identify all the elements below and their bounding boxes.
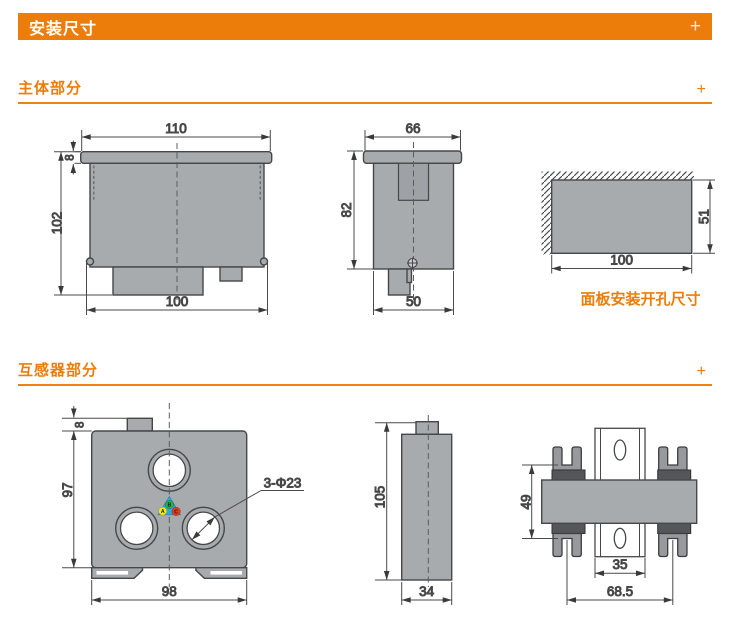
- drawing-ct-front-view: B A C 3-Φ23 8 97 98: [40, 400, 320, 615]
- dim-label: 35: [612, 557, 627, 572]
- rail-hole-bottom: [614, 528, 625, 548]
- mount-ear-right: [261, 258, 268, 265]
- dimension-width-top: 66: [365, 121, 461, 151]
- dimension-height: 51: [693, 180, 715, 253]
- ct-case: [402, 434, 452, 580]
- dim-label: 68.5: [607, 584, 633, 599]
- cutout-rectangle: [552, 180, 692, 253]
- dim-label: 82: [339, 202, 354, 217]
- ct-body-shape: [402, 415, 452, 587]
- dim-label: 100: [610, 253, 633, 268]
- subsection-header-main-body: 主体部分 +: [18, 77, 712, 104]
- dim-label: 97: [60, 482, 75, 497]
- phase-a-label: A: [161, 509, 165, 515]
- section-title-bar: 安装尺寸 +: [18, 13, 712, 40]
- dim-label: 50: [406, 294, 421, 309]
- dim-label: 98: [162, 584, 177, 599]
- clip-top-left: [553, 447, 581, 470]
- device-body-shape: [364, 142, 462, 300]
- ct-case-top: [542, 480, 697, 523]
- subsection-title: 互感器部分: [18, 359, 98, 380]
- dimension-rail-width: 35: [595, 557, 645, 578]
- dimension-width: 100: [552, 253, 692, 274]
- drawing-main-front-view: 110 8 102 100: [50, 110, 310, 322]
- dim-label: 100: [166, 294, 189, 309]
- ct-body-shape: B A C: [92, 403, 247, 587]
- dimension-height: 97: [60, 431, 92, 568]
- subsection-title: 主体部分: [18, 77, 82, 98]
- front-bezel: [81, 152, 272, 164]
- mount-ear-left: [87, 258, 94, 265]
- expand-plus-icon[interactable]: +: [690, 17, 701, 36]
- dim-label: 102: [50, 212, 65, 235]
- panel-cutout-caption: 面板安装开孔尺寸: [568, 288, 713, 309]
- drawing-ct-side-view: 105 34: [360, 400, 490, 615]
- top-tab: [127, 418, 152, 431]
- terminal-step: [407, 269, 412, 283]
- drawing-panel-cutout: 51 100: [520, 140, 730, 285]
- dim-label: 8: [74, 422, 86, 428]
- terminal-block-small: [220, 267, 242, 281]
- device-body-shape: [81, 143, 272, 300]
- dimension-width: 34: [402, 582, 452, 605]
- front-bezel: [364, 151, 462, 163]
- rail-hole-top: [614, 440, 625, 460]
- dim-label: 105: [373, 486, 388, 509]
- dim-label: 49: [519, 494, 534, 509]
- dimension-width: 98: [92, 580, 247, 605]
- drawing-main-side-view: 66 82 50: [330, 110, 490, 322]
- phase-b-label: B: [168, 503, 172, 509]
- dim-label: 66: [405, 121, 420, 136]
- clip-top-right: [659, 447, 687, 470]
- drawing-ct-top-view: 49 35 68.5: [500, 400, 730, 615]
- dimension-bezel-height: 8: [65, 141, 82, 175]
- expand-plus-icon[interactable]: +: [697, 364, 706, 380]
- page-title: 安装尺寸: [29, 15, 97, 39]
- top-tab: [416, 422, 438, 435]
- phase-c-label: C: [174, 509, 178, 515]
- dimension-tab-height: 8: [62, 406, 127, 428]
- dim-label: 51: [696, 209, 711, 224]
- terminal-block-large: [113, 267, 203, 295]
- foot-slot-left: [97, 571, 129, 575]
- subsection-header-transformer: 互感器部分 +: [18, 359, 712, 386]
- dim-label: 8: [65, 154, 77, 160]
- dimension-height: 82: [339, 151, 373, 269]
- dim-label: 110: [165, 121, 187, 136]
- foot-slot-right: [211, 571, 243, 575]
- hole-diameter-label: 3-Φ23: [264, 476, 302, 491]
- dim-label: 34: [419, 584, 435, 599]
- wire-hole-bottom-left: [116, 507, 158, 549]
- expand-plus-icon[interactable]: +: [697, 82, 706, 98]
- dimension-width-top: 110: [82, 121, 271, 151]
